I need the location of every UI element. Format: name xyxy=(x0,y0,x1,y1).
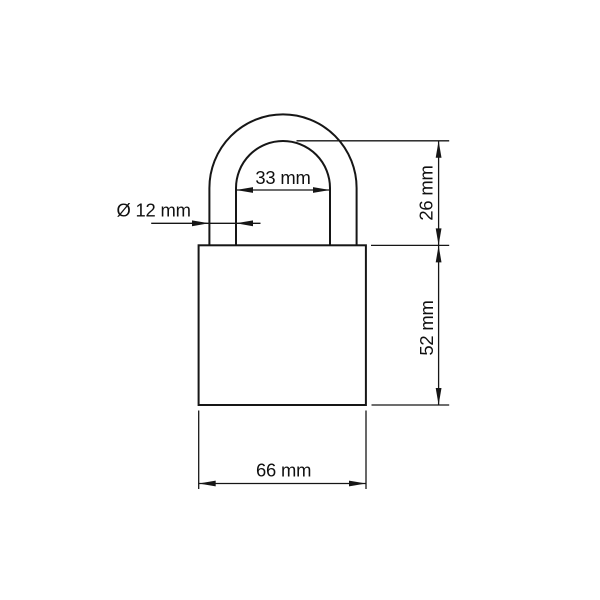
svg-text:Ø 12 mm: Ø 12 mm xyxy=(117,200,191,221)
svg-text:33 mm: 33 mm xyxy=(255,167,310,188)
svg-text:52 mm: 52 mm xyxy=(416,300,437,355)
svg-text:66 mm: 66 mm xyxy=(256,460,311,481)
svg-text:26 mm: 26 mm xyxy=(416,165,437,220)
